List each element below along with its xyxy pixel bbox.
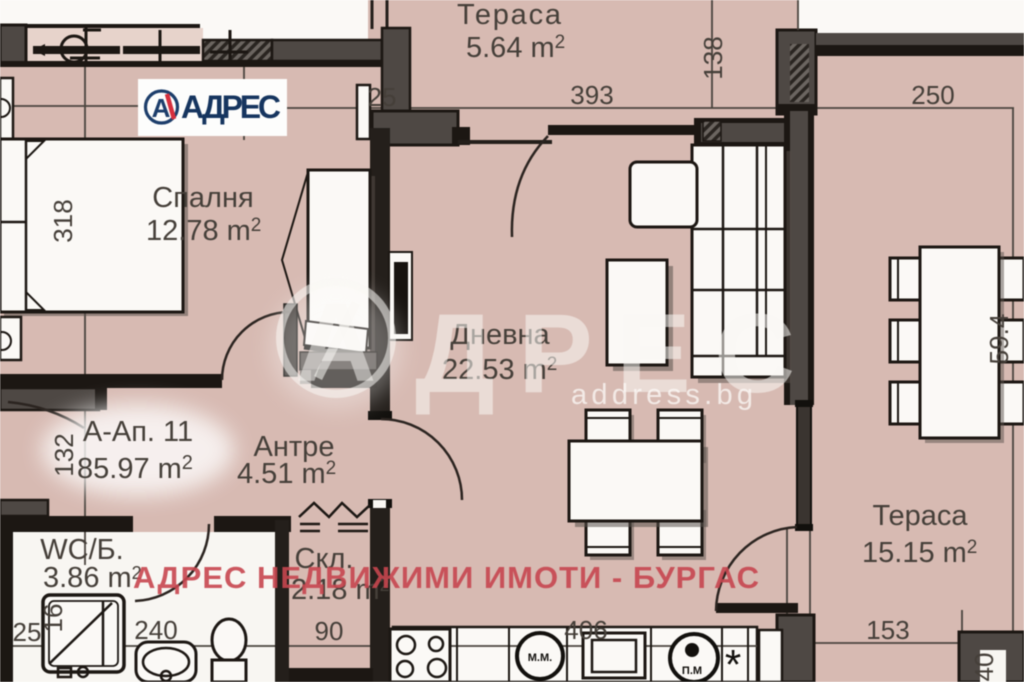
svg-text:393: 393 [570,80,613,110]
svg-text:16: 16 [38,604,68,633]
svg-text:132: 132 [49,433,79,476]
svg-text:А-Ап. 11: А-Ап. 11 [83,416,193,448]
svg-text:3.86 m2: 3.86 m2 [43,562,142,594]
svg-text:318: 318 [48,199,78,242]
svg-text:25: 25 [368,82,397,112]
svg-text:40: 40 [969,653,999,682]
svg-text:*: * [725,641,741,682]
svg-text:90: 90 [315,616,344,646]
svg-text:П.М: П.М [682,665,702,677]
svg-text:А: А [296,280,377,405]
svg-text:АДРЕС: АДРЕС [181,89,281,125]
svg-text:138: 138 [698,36,728,79]
svg-text:406: 406 [564,615,607,645]
svg-text:12.78 m2: 12.78 m2 [146,215,261,247]
svg-text:250: 250 [911,80,954,110]
svg-text:АДРЕС НЕДВИЖИМИ ИМОТИ - БУРГАС: АДРЕС НЕДВИЖИМИ ИМОТИ - БУРГАС [133,560,759,595]
svg-text:Спалня: Спалня [152,182,253,214]
svg-text:4.51 m2: 4.51 m2 [237,458,336,490]
svg-text:59.4: 59.4 [984,314,1014,365]
svg-text:address.bg: address.bg [571,379,753,411]
svg-text:85.97 m2: 85.97 m2 [77,452,193,485]
svg-text:5.64 m2: 5.64 m2 [466,32,565,64]
svg-text:153: 153 [866,615,909,645]
svg-text:15.15 m2: 15.15 m2 [862,537,977,569]
svg-text:М.М.: М.М. [528,652,552,664]
svg-text:240: 240 [134,615,177,645]
svg-text:Тераса: Тераса [872,500,968,532]
